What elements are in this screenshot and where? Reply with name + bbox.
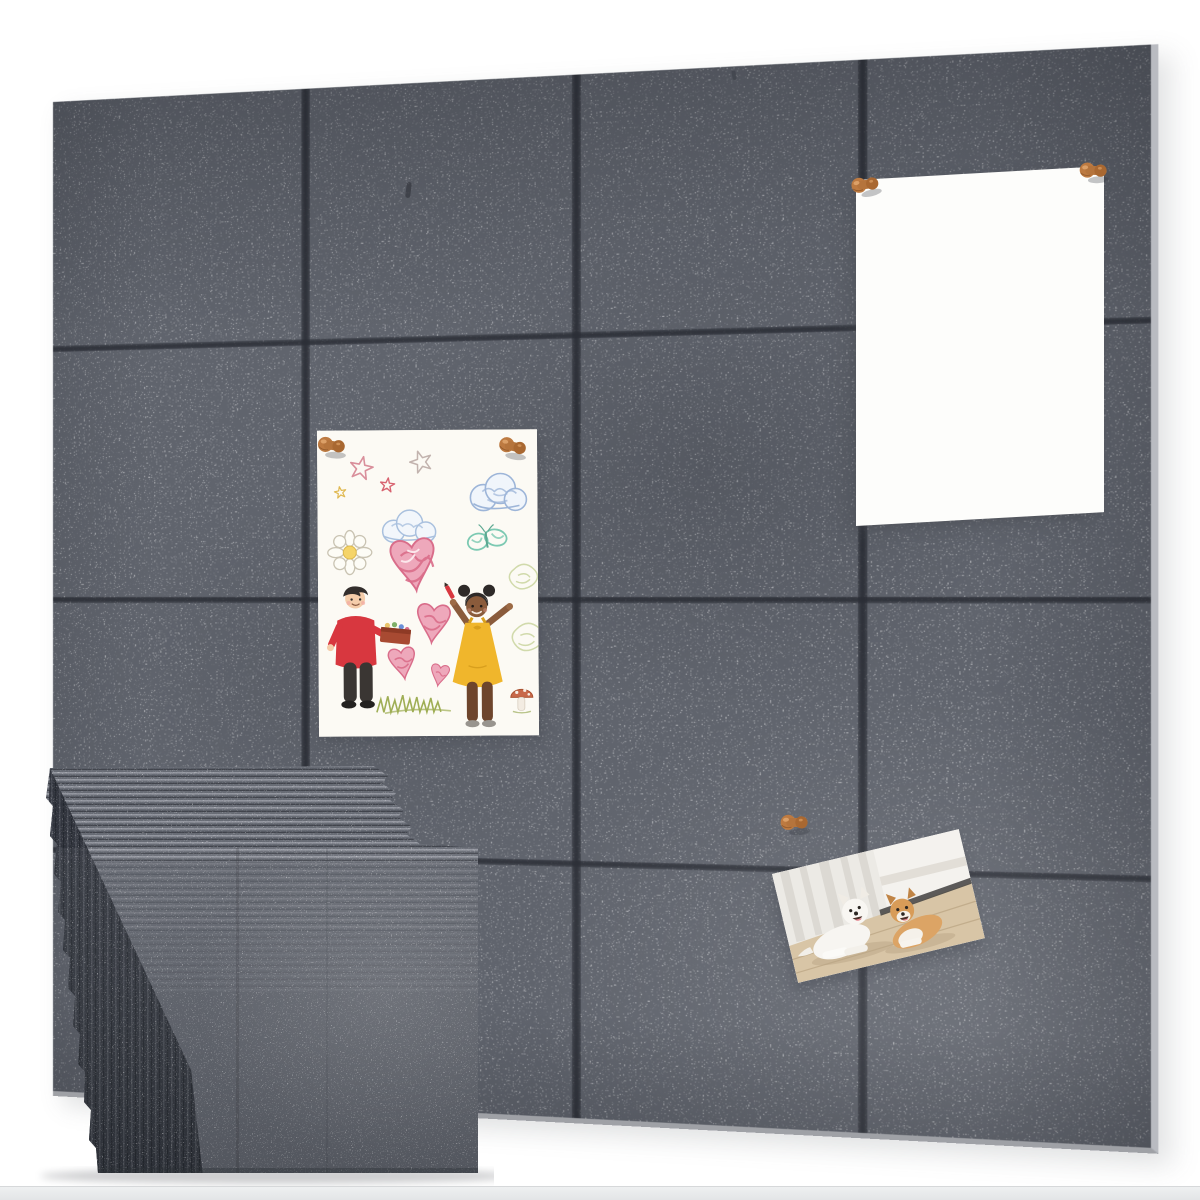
push-pin [777, 809, 814, 839]
kids-drawing [317, 429, 539, 737]
push-pin [1076, 157, 1112, 186]
product-photo-scene [0, 0, 1200, 1200]
felt-sheet-stack [26, 750, 494, 1186]
blank-poster [856, 166, 1104, 526]
push-pin [494, 432, 531, 463]
kids-drawing-art [317, 429, 539, 737]
push-pin [315, 433, 350, 461]
floor-strip [0, 1186, 1200, 1200]
